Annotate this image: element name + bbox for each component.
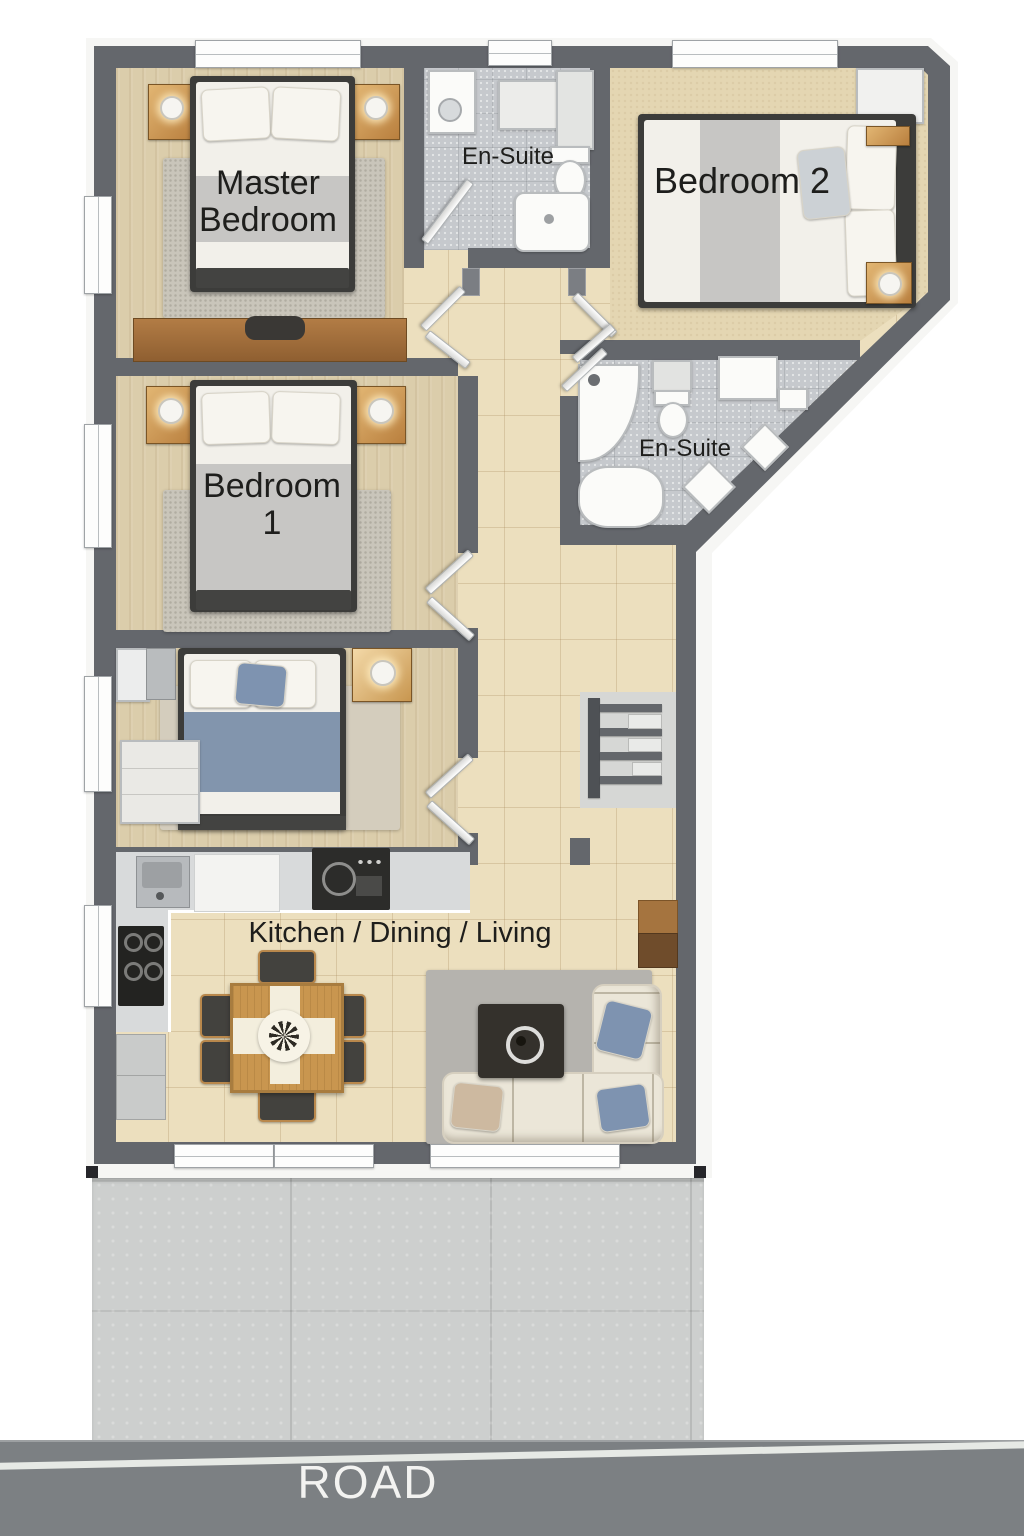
- wall-ensuite-middle-bottom: [560, 525, 690, 545]
- living-console-top: [638, 900, 678, 935]
- bedroom1-label: Bedroom 1: [162, 468, 382, 541]
- kitchen-hob-burner-4: [144, 962, 163, 981]
- master-bedroom-label-line1: Master: [158, 165, 378, 202]
- kitchen-sink-basin: [142, 862, 182, 888]
- ensuite-top-shower-drain: [544, 214, 554, 224]
- bedroom3-bed-blanket: [184, 712, 340, 798]
- window-living-bottom-2: [274, 1144, 374, 1168]
- sill-cap-right: [694, 1166, 706, 1178]
- ensuite-top-label: En-Suite: [438, 144, 578, 170]
- master-bedroom-label: Master Bedroom: [158, 165, 378, 238]
- sill-cap-left: [86, 1166, 98, 1178]
- wall-bedroom1-bedroom3-divider: [116, 630, 478, 648]
- sofa-pillow-tan: [450, 1082, 505, 1133]
- ensuite-middle-bath: [578, 466, 664, 528]
- wall-hall-left-upper: [458, 376, 478, 553]
- bedroom3-bed-base: [178, 816, 346, 830]
- master-lamp-right: [364, 96, 388, 120]
- ensuite-middle-vanity: [652, 360, 692, 392]
- living-console-bottom: [638, 933, 678, 968]
- dining-chair-left-2: [200, 1040, 234, 1084]
- shelf-box-1: [628, 714, 662, 729]
- bedroom3-pillow-blue: [234, 662, 287, 708]
- master-bedroom-label-line2: Bedroom: [158, 202, 378, 239]
- window-living-bottom-3: [430, 1144, 620, 1168]
- dining-chair-bottom: [258, 1088, 316, 1122]
- bedroom2-label: Bedroom 2: [632, 162, 852, 201]
- window-kitchen-left: [84, 905, 112, 1007]
- bedroom3-bed-foot-sheet: [184, 792, 340, 814]
- window-bedroom2-top: [672, 40, 838, 68]
- window-living-bottom-1: [174, 1144, 274, 1168]
- ensuite-middle-toilet-bowl: [658, 402, 688, 438]
- ensuite-top-basin: [438, 98, 462, 122]
- kitchen-hob-burner-3: [124, 962, 143, 981]
- bedroom2-lamp: [878, 272, 902, 296]
- kitchen-fridge: [116, 1034, 166, 1120]
- window-bedroom1-left: [84, 424, 112, 548]
- kitchen-sink-faucet: [156, 892, 164, 900]
- bedroom1-lamp-left: [158, 398, 184, 424]
- kitchen-hob-burner-1: [124, 933, 143, 952]
- master-bed-footboard: [196, 268, 349, 288]
- shelf-unit-spine: [588, 698, 600, 798]
- ensuite-middle-cabinet: [718, 356, 778, 400]
- shelf-4: [600, 776, 662, 784]
- ensuite-top-cabinet: [498, 80, 560, 130]
- master-pillow-left: [201, 86, 272, 141]
- shelf-3: [600, 752, 662, 760]
- ensuite-middle-label: En-Suite: [615, 436, 755, 462]
- master-pillow-right: [271, 86, 342, 141]
- bedroom2-bed-blanket: [700, 120, 780, 302]
- dining-chair-left-1: [200, 994, 234, 1038]
- ensuite-middle-basin: [778, 388, 808, 410]
- window-ensuite-top: [488, 40, 552, 66]
- bedroom3-lamp: [370, 660, 396, 686]
- kitchen-dining-living-label: Kitchen / Dining / Living: [180, 918, 620, 949]
- shelf-1: [600, 704, 662, 712]
- bedroom1-bed-footboard: [196, 590, 351, 610]
- kitchen-oven-controls: [356, 858, 384, 866]
- sofa-pillow-blue-2: [595, 1083, 651, 1134]
- wall-ensuite-middle-left-b: [560, 396, 580, 545]
- coffee-table-bowl-center: [516, 1036, 526, 1046]
- bedroom3-wardrobe-left: [116, 648, 150, 702]
- dining-chair-top: [258, 950, 316, 984]
- bedroom1-pillow-right: [271, 391, 341, 445]
- bedroom3-wardrobe-right: [146, 648, 176, 700]
- wall-kitchen-stub: [570, 838, 590, 865]
- shelf-box-3: [632, 762, 662, 776]
- bedroom2-nightstand-top: [866, 126, 910, 146]
- shelf-box-2: [628, 738, 662, 752]
- bedroom1-pillow-left: [201, 391, 271, 445]
- ensuite-top-tall-cabinet: [556, 70, 594, 150]
- master-lamp-left: [160, 96, 184, 120]
- bedroom1-label-line2: 1: [162, 505, 382, 542]
- bedroom3-dresser: [120, 740, 200, 824]
- road-label: ROAD: [238, 1458, 498, 1508]
- shelf-2: [600, 728, 662, 736]
- floor-plan: ROAD: [0, 0, 1024, 1536]
- window-bedroom3-left: [84, 676, 112, 792]
- kitchen-oven-burner: [322, 862, 356, 896]
- kitchen-cabinet-white: [194, 854, 280, 912]
- kitchen-oven-tray: [356, 876, 382, 896]
- ensuite-middle-shower-head: [588, 374, 600, 386]
- window-master-left: [84, 196, 112, 294]
- coffee-table-bowl: [506, 1026, 544, 1064]
- window-master-top: [195, 40, 361, 68]
- kitchen-hob-burner-2: [144, 933, 163, 952]
- driveway: [92, 1178, 704, 1440]
- master-desk-chair: [245, 316, 305, 340]
- bedroom1-label-line1: Bedroom: [162, 468, 382, 505]
- bedroom1-lamp-right: [368, 398, 394, 424]
